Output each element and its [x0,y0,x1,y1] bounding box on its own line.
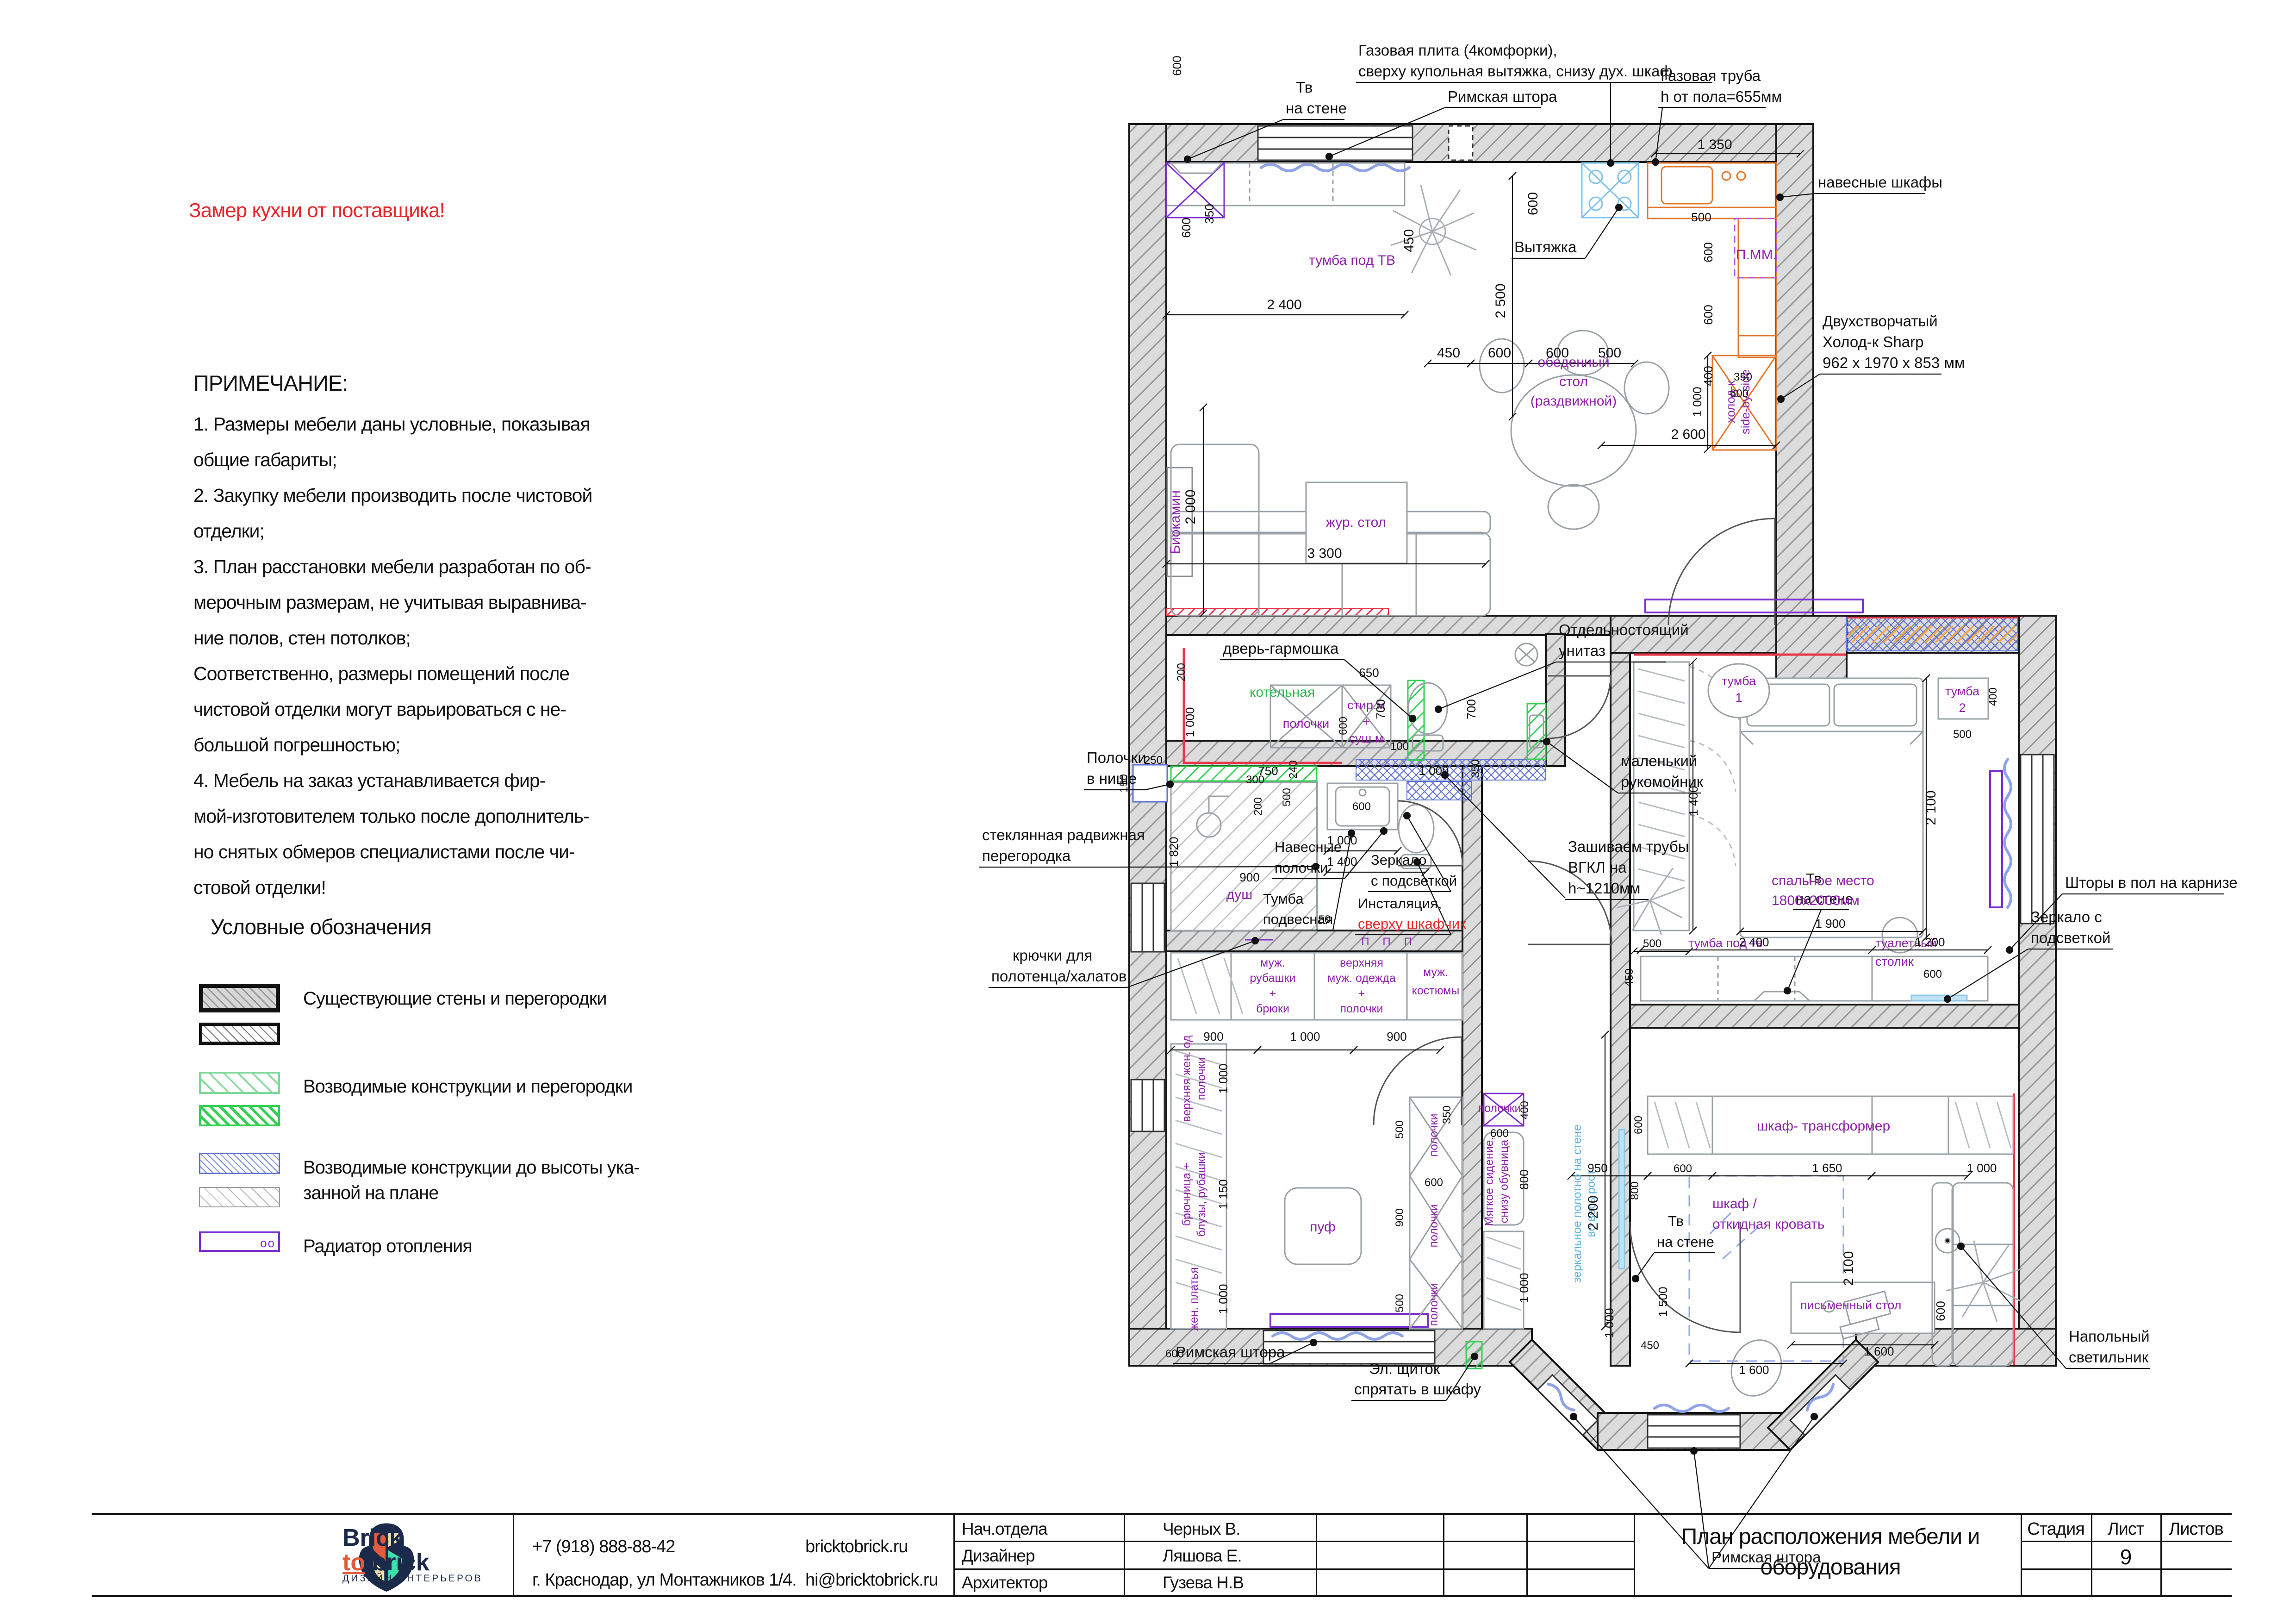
plan-label: 2 200 [1586,1195,1601,1230]
plan-label: Газовая труба [1661,67,1761,84]
plan-label: 600 [1352,800,1371,813]
plan-label: Тв [1668,1213,1684,1229]
plan-label: + [1363,715,1370,729]
plan-label: Полочки [1087,749,1146,766]
name-2: Гузева Н.В [1163,1573,1244,1593]
plan-label: Тв [1296,79,1313,96]
name-1: Ляшова Е. [1163,1546,1242,1566]
plan-label: 600 [1179,218,1193,237]
brand-to: to [342,1549,365,1576]
plan-label: 1 500 [1656,1287,1670,1317]
plan-label: 1 400 [1686,786,1700,816]
legend-swatch-bluex [199,1153,280,1174]
plan-label: 3 300 [1307,546,1342,561]
legend-label: Возводимые конструкции и перегородки [303,1074,633,1099]
plan-label: 1 350 [1697,137,1732,152]
plan-label: брюки [1256,1002,1289,1015]
plan-label: 2 400 [1267,297,1301,312]
plan-label: стеклянная радвижная [982,826,1145,843]
plan-label: 2 400 [1739,935,1769,949]
plan-label: 350 [1202,204,1216,224]
plan-label: подсветкой [2031,929,2110,946]
plan-label: 800 [1629,1181,1641,1200]
plan-label: 900 [1387,1030,1406,1043]
note-line: отделки; [193,513,744,549]
plan-label: 900 [1203,1030,1223,1043]
plan-label: сверху купольная вытяжка, снизу дух. шка… [1358,62,1673,80]
plan-label: полочки [1427,1204,1440,1247]
plan-label: 1 900 [1815,917,1845,931]
plan-label: рубашки [1250,972,1295,985]
plan-label: 500 [1953,728,1972,741]
plan-label: 600 [1490,1127,1509,1140]
plan-label: 1 000 [1602,1308,1616,1338]
plan-label: 400 [1701,366,1715,386]
plan-label: зеркальное полотно на стене [1571,1124,1584,1283]
plan-label: навесные шкафы [1818,174,1942,191]
plan-label: 1 000 [1419,764,1449,778]
plan-label: брючница + [1180,1163,1193,1226]
drawing-title-line2: оборудования [1636,1555,2025,1580]
plan-label: Отдельностоящий [1559,621,1689,638]
plan-label: 962 х 1970 х 853 мм [1823,354,1965,371]
plan-label: П.ММ. [1736,247,1777,262]
plan-label: на стене [1657,1234,1714,1250]
plan-label: Зашиваем трубы [1568,838,1689,855]
stage-label: Стадия [2021,1519,2091,1539]
note-line: 4. Мебель на заказ устанавливается фир- [193,763,744,799]
plan-label: Зеркало с [2031,908,2102,925]
legend-title: Условные обозначения [211,914,431,939]
plan-label: спальное место [1772,873,1874,888]
plan-label: 450 [1641,1339,1659,1352]
brand-line1: Brick [342,1524,403,1552]
plan-label: 350 [1469,759,1482,778]
legend-swatch-new-green [199,1105,280,1126]
plan-label: полочки [1427,1113,1440,1156]
note-line: 1. Размеры мебели даны условные, показыв… [193,406,744,442]
plan-label: дверь-гармошка [1223,640,1339,657]
plan-label: 300 [1246,774,1264,786]
plan-label: Эл. щиток [1369,1360,1440,1377]
plan-label: 1 150 [1216,1179,1230,1209]
plan-label: с подсветкой [1371,873,1457,889]
plan-label: тумба под ТВ [1309,253,1395,268]
plan-label: 450 [1437,345,1460,361]
legend-swatch-new-light [199,1072,280,1094]
plan-label: Двухстворчатый [1823,312,1938,330]
plan-label: 400 [1987,687,1999,706]
plan-label: 500 [1598,345,1621,361]
plan-label: откидная кровать [1712,1217,1824,1232]
role-0: Нач.отдела [962,1519,1047,1539]
plan-label: 1800х2000мм [1772,893,1860,908]
plan-label: Мягкое сидение, [1483,1137,1496,1226]
email[interactable]: hi@bricktobrick.ru [805,1570,938,1590]
plan-label: письменный стол [1800,1298,1901,1312]
plan-label: жур. стол [1326,515,1386,530]
legend-swatch-existing [199,984,280,1012]
plan-label: 2 500 [1493,283,1508,318]
plan-label: крючки для [1013,947,1092,964]
plan-label: 600 [1701,242,1715,262]
plan-label: h~1210мм [1568,880,1640,897]
plan-label: верхняя жен. од [1180,1035,1193,1122]
plan-label: 600 [1934,1301,1948,1321]
plan-label: 2 100 [1923,790,1939,825]
plan-label: котельная [1250,685,1315,700]
role-2: Архитектор [962,1573,1047,1593]
name-0: Черных В. [1163,1519,1240,1539]
note-line: Соответственно, размеры помещений после [193,656,744,692]
plan-label: сверху шкафчик [1358,916,1466,932]
plan-label: 250 [1144,754,1163,767]
plan-label: 100 [1390,740,1409,753]
plan-label: Римская штора [1448,88,1557,105]
legend-swatch-existing-thin [199,1023,280,1045]
plan-label: 2 600 [1671,427,1705,442]
plan-label: П [1361,936,1369,948]
plan-label: 2 000 [1183,489,1198,524]
plan-label: Инсталяция, [1358,895,1442,912]
plan-label: h от пола=655мм [1661,88,1782,105]
plan-label: 1 000 [1216,1284,1230,1314]
plan-label: столик [1875,955,1914,968]
sheet-label: Лист [2091,1519,2160,1539]
plan-label: тумба [1722,674,1756,688]
plan-label: 600 [1525,192,1541,215]
legend-item-existing-walls: Существующие стены и перегородки [199,984,607,1045]
plan-label: блузы, рубашки [1195,1152,1208,1237]
legend-item-radiator: oo Радиатор отопления [199,1231,472,1259]
plan-label: 500 [1691,210,1711,224]
note-line: чистовой отделки могут варьироваться с н… [193,692,744,727]
plan-label: костюмы [1412,984,1460,997]
address: г. Краснодар, ул Монтажников 1/4. [532,1570,796,1590]
plan-label: тумба [1945,684,1980,698]
notes-list: 1. Размеры мебели даны условные, показыв… [193,406,744,906]
plan-label: 700 [1374,699,1388,719]
plan-label: ВГКЛ на [1568,859,1627,876]
plan-label: 1 000 [1966,1161,1997,1175]
plan-label: Тумба [1263,891,1304,907]
sheets-label: Листов [2160,1519,2232,1539]
plan-label: полочки [1478,1102,1521,1115]
plan-label: Шторы в пол на карнизе [2065,874,2238,891]
legend-label: Возводимые конструкции до высоты ука- за… [303,1155,640,1206]
phone: +7 (918) 888-88-42 [532,1537,675,1557]
legend-label: Существующие стены и перегородки [303,986,607,1012]
plan-label: 600 [1923,968,1942,981]
plan-label: полочки [1195,1057,1208,1100]
plan-label: 1 000 [1183,707,1197,737]
plan-label: + [1269,987,1276,1000]
plan-label: 500 [1394,1120,1406,1139]
plan-label: снизу обувница [1498,1140,1511,1223]
drawing-sheet: { "sheet": { "red_note": "Замер кухни от… [0,0,2296,1624]
plan-label: Римская штора [1176,1343,1285,1361]
plan-label: Холод-к Sharp [1823,333,1923,350]
legend-label: Радиатор отопления [303,1234,472,1259]
plan-label: 600 [1730,387,1748,400]
plan-label: Вытяжка [1514,238,1577,256]
plan-label: 600 [1632,1116,1645,1134]
plan-label: 1 [1735,691,1742,705]
plan-label: 2 100 [1841,1251,1856,1286]
notes-title: ПРИМЕЧАНИЕ: [193,370,348,396]
plan-label: 1 820 [1167,837,1181,867]
plan-label: 240 [1287,760,1300,779]
plan-label: душ [1226,887,1253,902]
plan-label: П [1404,936,1412,948]
plan-label: 450 [1401,229,1417,252]
plan-label: шкаф / [1712,1196,1757,1212]
plan-label: 600 [1674,1162,1692,1175]
supplier-note: Замер кухни от поставщика! [189,199,445,222]
plan-label: полочки [1340,1002,1383,1015]
plan-label: 1 000 [1690,387,1704,417]
plan-label: жен. платья [1188,1267,1201,1331]
plan-label: пуф [1310,1219,1336,1235]
plan-label: 500 [1281,788,1293,806]
note-line: мой-изготовителем только после дополните… [193,799,744,834]
website[interactable]: bricktobrick.ru [805,1537,908,1557]
note-line: мерочным размерам, не учитывая выравнива… [193,585,744,620]
plan-label: (раздвижной) [1531,394,1617,409]
plan-label: 1 000 [1290,1030,1320,1043]
note-line: стовой отделки! [193,870,744,906]
note-line: ние полов, стен потолков; [193,620,744,656]
plan-label: Напольный [2069,1328,2150,1345]
drawing-title-line1: План расположения мебели и [1636,1524,2025,1549]
plan-label: 50 [1319,913,1331,926]
plan-label: 1 600 [1864,1344,1894,1358]
plan-label: 600 [1425,1176,1443,1189]
plan-label: 2 [1959,701,1966,715]
plan-label: полочки [1283,717,1330,731]
plan-label: 1 400 [1327,855,1357,868]
plan-label: 400 [1518,1101,1531,1119]
plan-label: 900 [1394,1208,1406,1227]
plan-label: 1 650 [1812,1161,1842,1175]
plan-label: 600 [1701,305,1715,325]
plan-label: 600 [1165,1348,1184,1360]
plan-label: 1 000 [1517,1273,1531,1303]
plan-label: 200 [1175,663,1188,681]
note-line: но снятых обмеров специалистами после чи… [193,834,744,870]
plan-label: муж. [1260,956,1285,969]
plan-label: 1 600 [1739,1363,1769,1377]
plan-label: П [1382,936,1390,948]
legend-item-partial-height: Возводимые конструкции до высоты ука- за… [199,1153,640,1207]
plan-label: суш.м [1349,731,1384,745]
plan-label: муж. одежда [1327,972,1396,985]
plan-label: 700 [1464,699,1478,719]
legend-swatch-radiator: oo [199,1231,280,1252]
plan-label: стол [1559,374,1588,389]
plan-label: 600 [1546,345,1569,361]
plan-label: 500 [1643,937,1661,950]
plan-label: 200 [1252,797,1264,816]
plan-label: муж. [1423,966,1448,979]
plan-label: 1 200 [1915,935,1945,949]
plan-label: унитаз [1559,642,1605,659]
plan-label: 500 [1394,1294,1406,1312]
legend-item-new-walls: Возводимые конструкции и перегородки [199,1072,633,1126]
plan-label: Газовая плита (4комфорки), [1358,42,1557,59]
plan-label: 900 [1239,870,1259,884]
plan-label: 150 [1118,774,1130,793]
plan-label: + [1358,987,1365,1000]
brand-line2-text: brick [372,1549,429,1576]
plan-label: 350 [1441,1106,1453,1124]
plan-label: 950 [1587,1161,1607,1175]
role-1: Дизайнер [962,1546,1035,1566]
brand-line2: to brick [342,1549,429,1576]
plan-label: полочки [1275,860,1328,876]
legend-swatch-gray-thin [199,1187,280,1207]
plan-label: спрятать в шкафу [1354,1380,1481,1398]
plan-label: Зеркало [1371,852,1426,868]
brand-subtitle: ДИЗАЙН ИНТЕРЬЕРОВ [342,1573,483,1584]
plan-label: Биокамин [1168,490,1183,554]
plan-label: 600 [1337,717,1350,735]
note-line: 3. План расстановки мебели разработан по… [193,549,744,585]
plan-label: 800 [1517,1169,1531,1189]
sheet-number: 9 [2091,1544,2160,1569]
plan-label: маленький [1621,752,1697,769]
note-line: общие габариты; [193,442,744,478]
plan-label: 600 [1170,56,1184,75]
plan-label: 1 000 [1327,833,1357,847]
plan-label: на стене [1286,100,1347,117]
plan-label: 600 [1488,345,1511,361]
plan-label: полотенца/халатов [991,968,1127,985]
note-line: большой погрешностью; [193,727,744,763]
plan-label: 350 [1734,371,1752,383]
plan-label: холод-к [1724,381,1737,423]
plan-label: полочки [1427,1283,1440,1326]
plan-label: 450 [1623,968,1636,987]
plan-label: 650 [1359,666,1379,680]
plan-label: светильник [2069,1349,2149,1366]
plan-label: 1 000 [1216,1063,1230,1093]
plan-label: верхняя [1340,956,1383,969]
note-line: 2. Закупку мебели производить после чист… [193,478,744,513]
plan-label: шкаф- трансформер [1757,1118,1890,1134]
plan-label: перегородка [982,847,1071,864]
